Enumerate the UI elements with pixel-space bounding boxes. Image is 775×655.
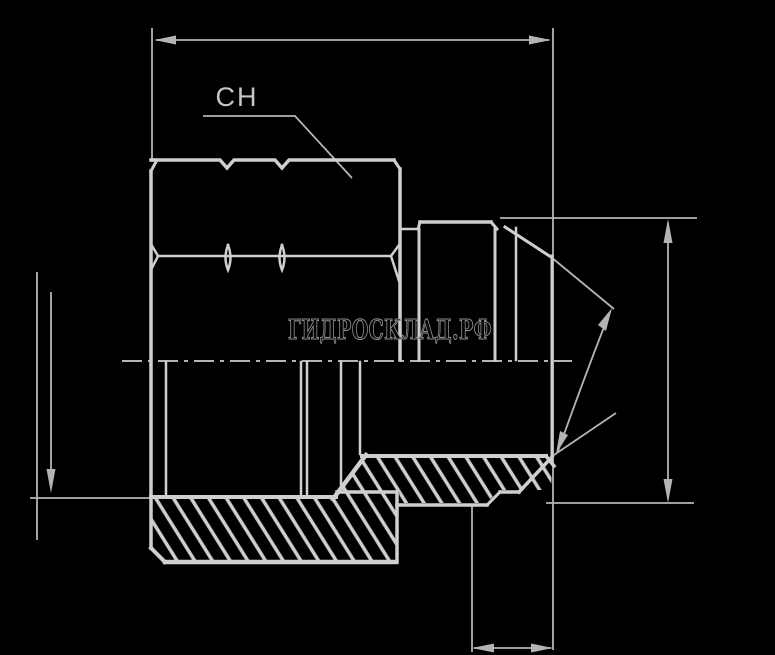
watermark: ГИДРОСКЛАД.РФ [288, 315, 492, 346]
fitting-technical-drawing: CH ГИДРОСКЛАД.РФ [0, 0, 775, 655]
nut-section-hatch [151, 493, 396, 561]
technical-drawing-canvas: CH ГИДРОСКЛАД.РФ [0, 0, 775, 655]
wrench-size-label: CH [216, 82, 259, 112]
